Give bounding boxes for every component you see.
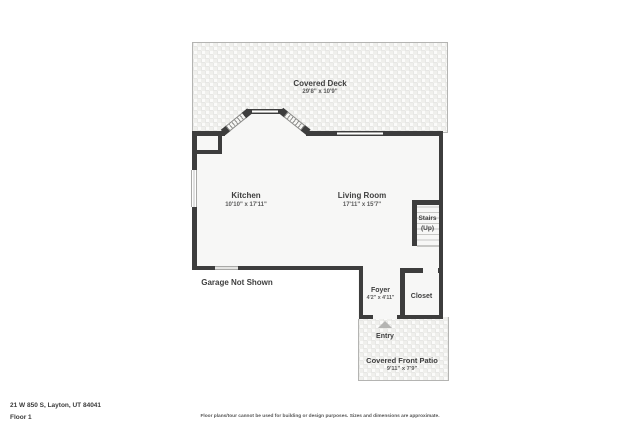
wall-foyer-left: [359, 268, 364, 319]
kitchen-dimensions: 10'10" x 17'11": [225, 202, 267, 208]
closet-label: Closet: [411, 293, 432, 300]
foyer-label: Foyer: [371, 287, 390, 294]
living-room-dimensions: 17'11" x 15'7": [343, 202, 381, 208]
wall-closet-bottom: [400, 315, 443, 320]
floor-label: Floor 1: [10, 415, 32, 422]
garage-side-opening: [215, 266, 238, 270]
entry-arrow-icon: [378, 321, 392, 328]
bay-top-window: [252, 110, 278, 114]
wall-closet-top-nub: [438, 268, 444, 273]
kitchen-window: [191, 170, 197, 207]
living-room-label: Living Room: [338, 192, 386, 200]
wall-nook-vertical: [218, 133, 222, 154]
covered-deck-dimensions: 29'8" x 10'9": [302, 89, 337, 95]
main-floor: [192, 131, 443, 270]
covered-front-patio-dimensions: 9'11" x 7'9": [387, 367, 418, 373]
covered-deck-label: Covered Deck: [293, 80, 346, 88]
stairs-up-label: (Up): [421, 226, 434, 233]
covered-front-patio-label: Covered Front Patio: [366, 357, 438, 365]
wall-right-outer: [439, 133, 444, 319]
wall-closet-left: [400, 268, 405, 319]
kitchen-label: Kitchen: [231, 192, 260, 200]
living-room-window: [337, 132, 383, 136]
disclaimer-text: Floor plans/tour cannot be used for buil…: [200, 415, 439, 420]
entry-label: Entry: [376, 333, 394, 340]
foyer-dimensions: 4'2" x 4'11": [367, 296, 395, 301]
stairs-label: Stairs: [418, 216, 436, 223]
floorplan-canvas: Covered Deck 29'8" x 10'9" Kitchen 10'10…: [0, 0, 640, 427]
wall-stairs-top: [412, 200, 443, 205]
wall-foyer-bottom-left: [359, 315, 373, 320]
property-address: 21 W 850 S, Layton, UT 84041: [10, 403, 101, 410]
garage-note-label: Garage Not Shown: [201, 279, 273, 287]
